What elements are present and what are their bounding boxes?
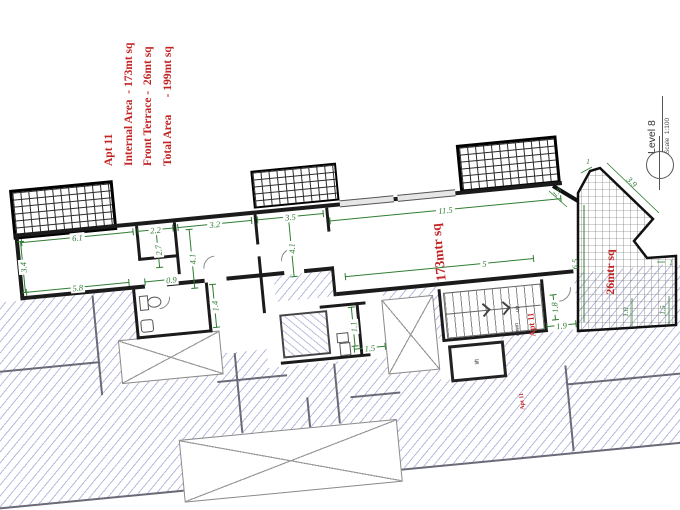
dimension: 1.0: [621, 307, 630, 317]
terrace-area-label: 26mtr sq: [603, 249, 617, 295]
dimension: 3.9: [624, 174, 640, 190]
dimension: 6.5: [570, 259, 580, 270]
floor-plan-page: Apt 11 Internal Area - 173mt sq Front Te…: [0, 0, 680, 510]
dimension: 1.5: [658, 305, 667, 315]
dimension: 1: [669, 258, 673, 267]
dimension: 1: [586, 157, 590, 166]
terrace-overlay: 6.5 1.8 1 3.9 1 1.0 1.5 26mtr sq: [0, 0, 680, 510]
